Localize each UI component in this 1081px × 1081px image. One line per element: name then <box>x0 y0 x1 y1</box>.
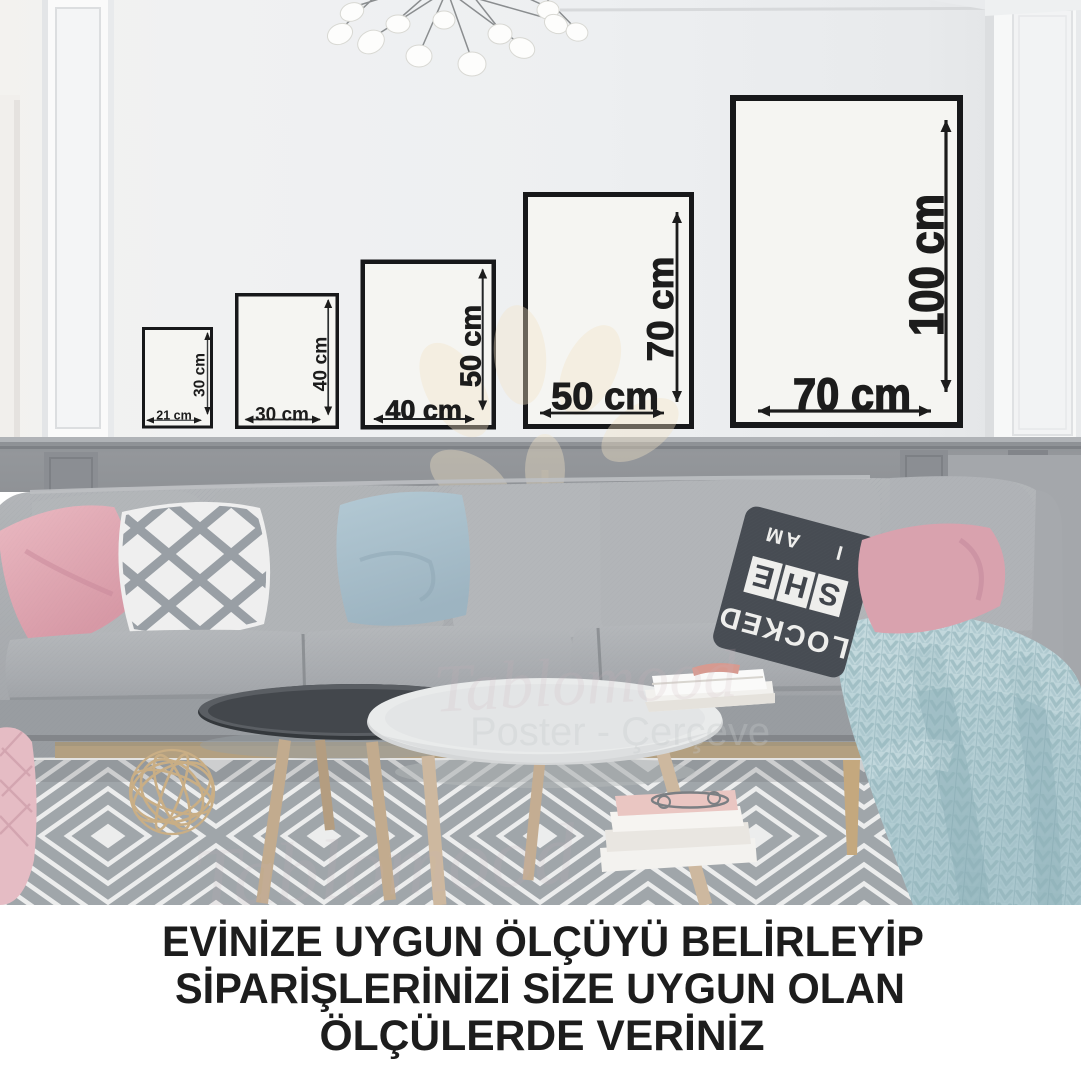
svg-text:50 cm: 50 cm <box>551 376 659 418</box>
svg-text:100 cm: 100 cm <box>901 194 954 336</box>
svg-text:30 cm: 30 cm <box>255 405 309 426</box>
svg-text:21 cm: 21 cm <box>156 409 191 423</box>
svg-text:70 cm: 70 cm <box>793 369 911 420</box>
svg-text:SİPARİŞLERİNİZİ SİZE UYGUN OLA: SİPARİŞLERİNİZİ SİZE UYGUN OLAN <box>175 965 905 1013</box>
svg-text:30 cm: 30 cm <box>192 353 209 397</box>
svg-text:70 cm: 70 cm <box>640 257 681 362</box>
svg-text:40 cm: 40 cm <box>311 337 332 392</box>
svg-text:40 cm: 40 cm <box>385 395 462 425</box>
svg-text:EVİNİZE UYGUN ÖLÇÜYÜ BELİRLEYİ: EVİNİZE UYGUN ÖLÇÜYÜ BELİRLEYİP <box>162 918 924 966</box>
svg-text:Poster - Çerçeve: Poster - Çerçeve <box>470 710 770 754</box>
svg-text:50 cm: 50 cm <box>456 305 488 387</box>
svg-text:ÖLÇÜLERDE VERİNİZ: ÖLÇÜLERDE VERİNİZ <box>320 1012 765 1060</box>
